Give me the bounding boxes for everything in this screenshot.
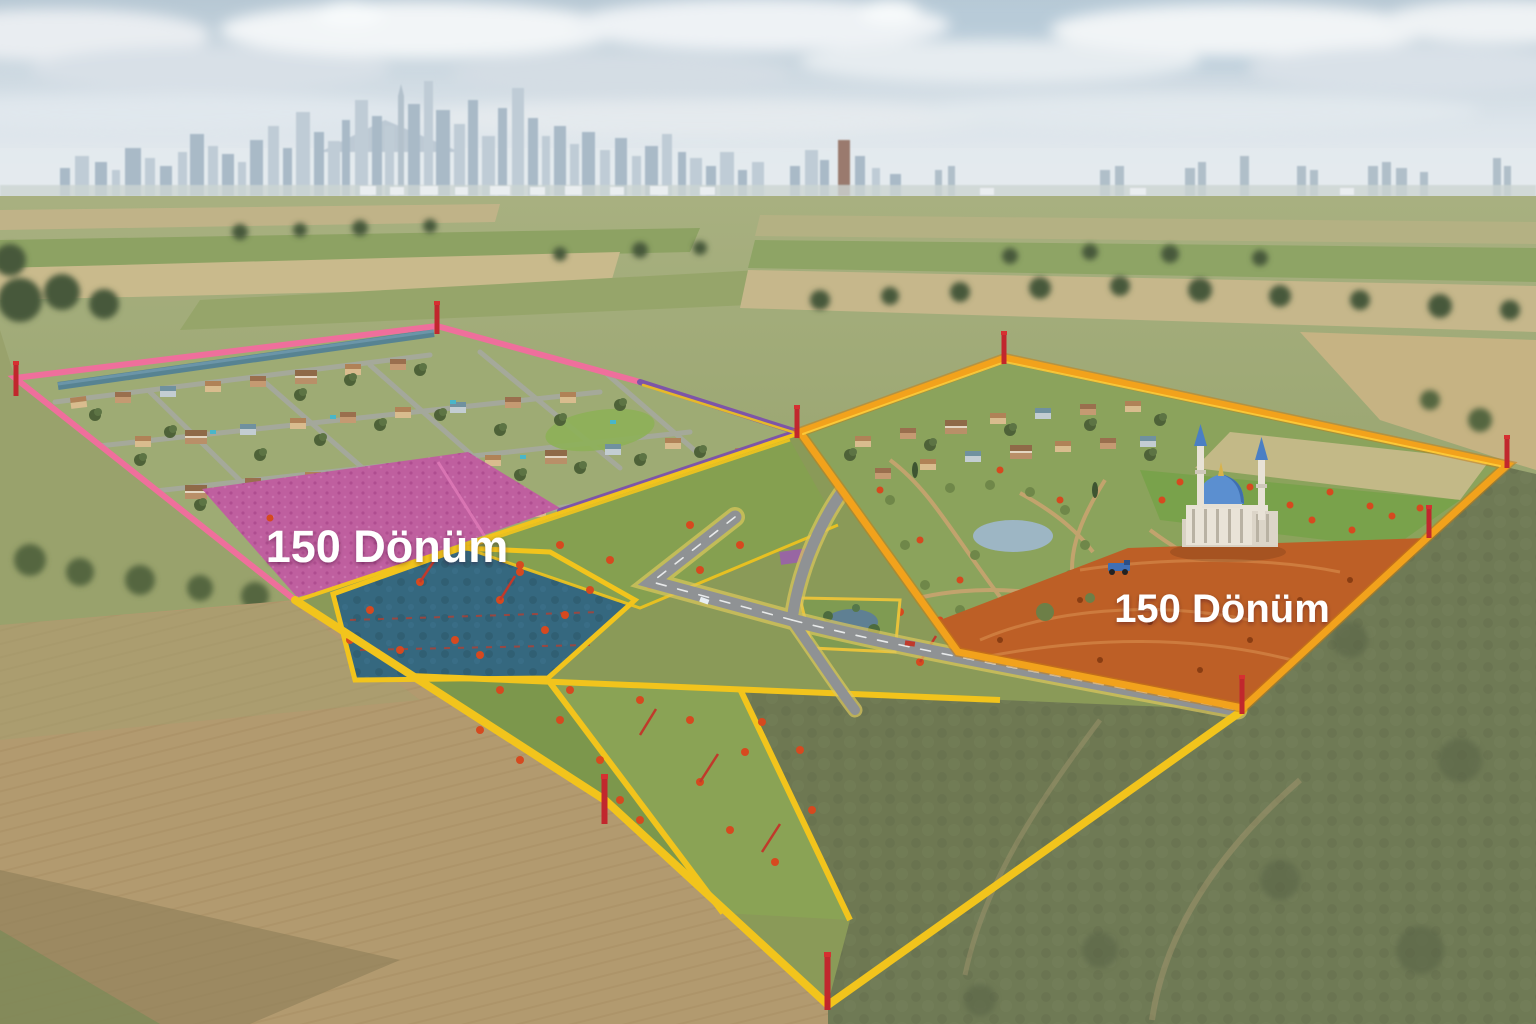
spire-tower [398,84,404,196]
survey-stake [794,405,800,438]
olive-bush [1036,603,1054,621]
survey-stake [13,361,19,396]
aerial-photo: 150 Dönüm 150 Dönüm [0,0,1536,1024]
park-pond [973,520,1053,552]
survey-stake [1426,505,1432,538]
survey-stake [434,301,440,334]
survey-stake [1001,331,1007,364]
west-parcel-area-label: 150 Dönüm [266,521,509,572]
survey-stake [824,952,831,1010]
survey-stake [601,774,608,824]
survey-stake [1504,435,1510,468]
survey-stake [1239,675,1245,714]
east-parcel-area-label: 150 Dönüm [1114,587,1330,631]
